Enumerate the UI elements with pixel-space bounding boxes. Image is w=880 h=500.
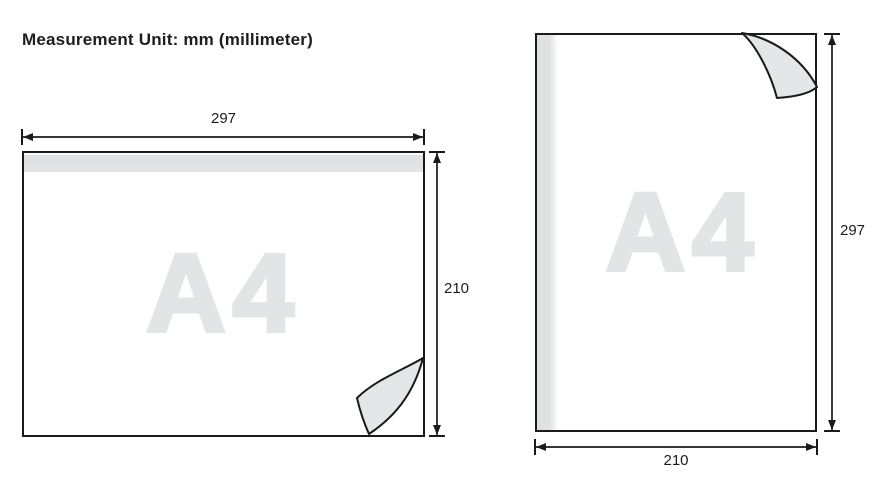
portrait-binding-strip (537, 35, 558, 430)
landscape-height-label: 210 (444, 280, 469, 297)
portrait-width-label: 210 (535, 452, 817, 469)
portrait-watermark: A4 (606, 178, 761, 288)
landscape-binding-strip (24, 155, 423, 172)
landscape-width-label: 297 (22, 110, 425, 127)
landscape-height-dimension-arrow (429, 151, 445, 437)
landscape-corner-curl-icon (345, 348, 430, 440)
landscape-watermark: A4 (146, 239, 301, 349)
landscape-width-dimension-arrow (21, 129, 425, 145)
portrait-height-label: 297 (840, 222, 865, 239)
portrait-corner-curl-icon (737, 30, 821, 102)
portrait-height-dimension-arrow (824, 33, 840, 432)
page-title: Measurement Unit: mm (millimeter) (22, 30, 313, 50)
diagram-canvas: Measurement Unit: mm (millimeter) 297 A4… (0, 0, 880, 500)
